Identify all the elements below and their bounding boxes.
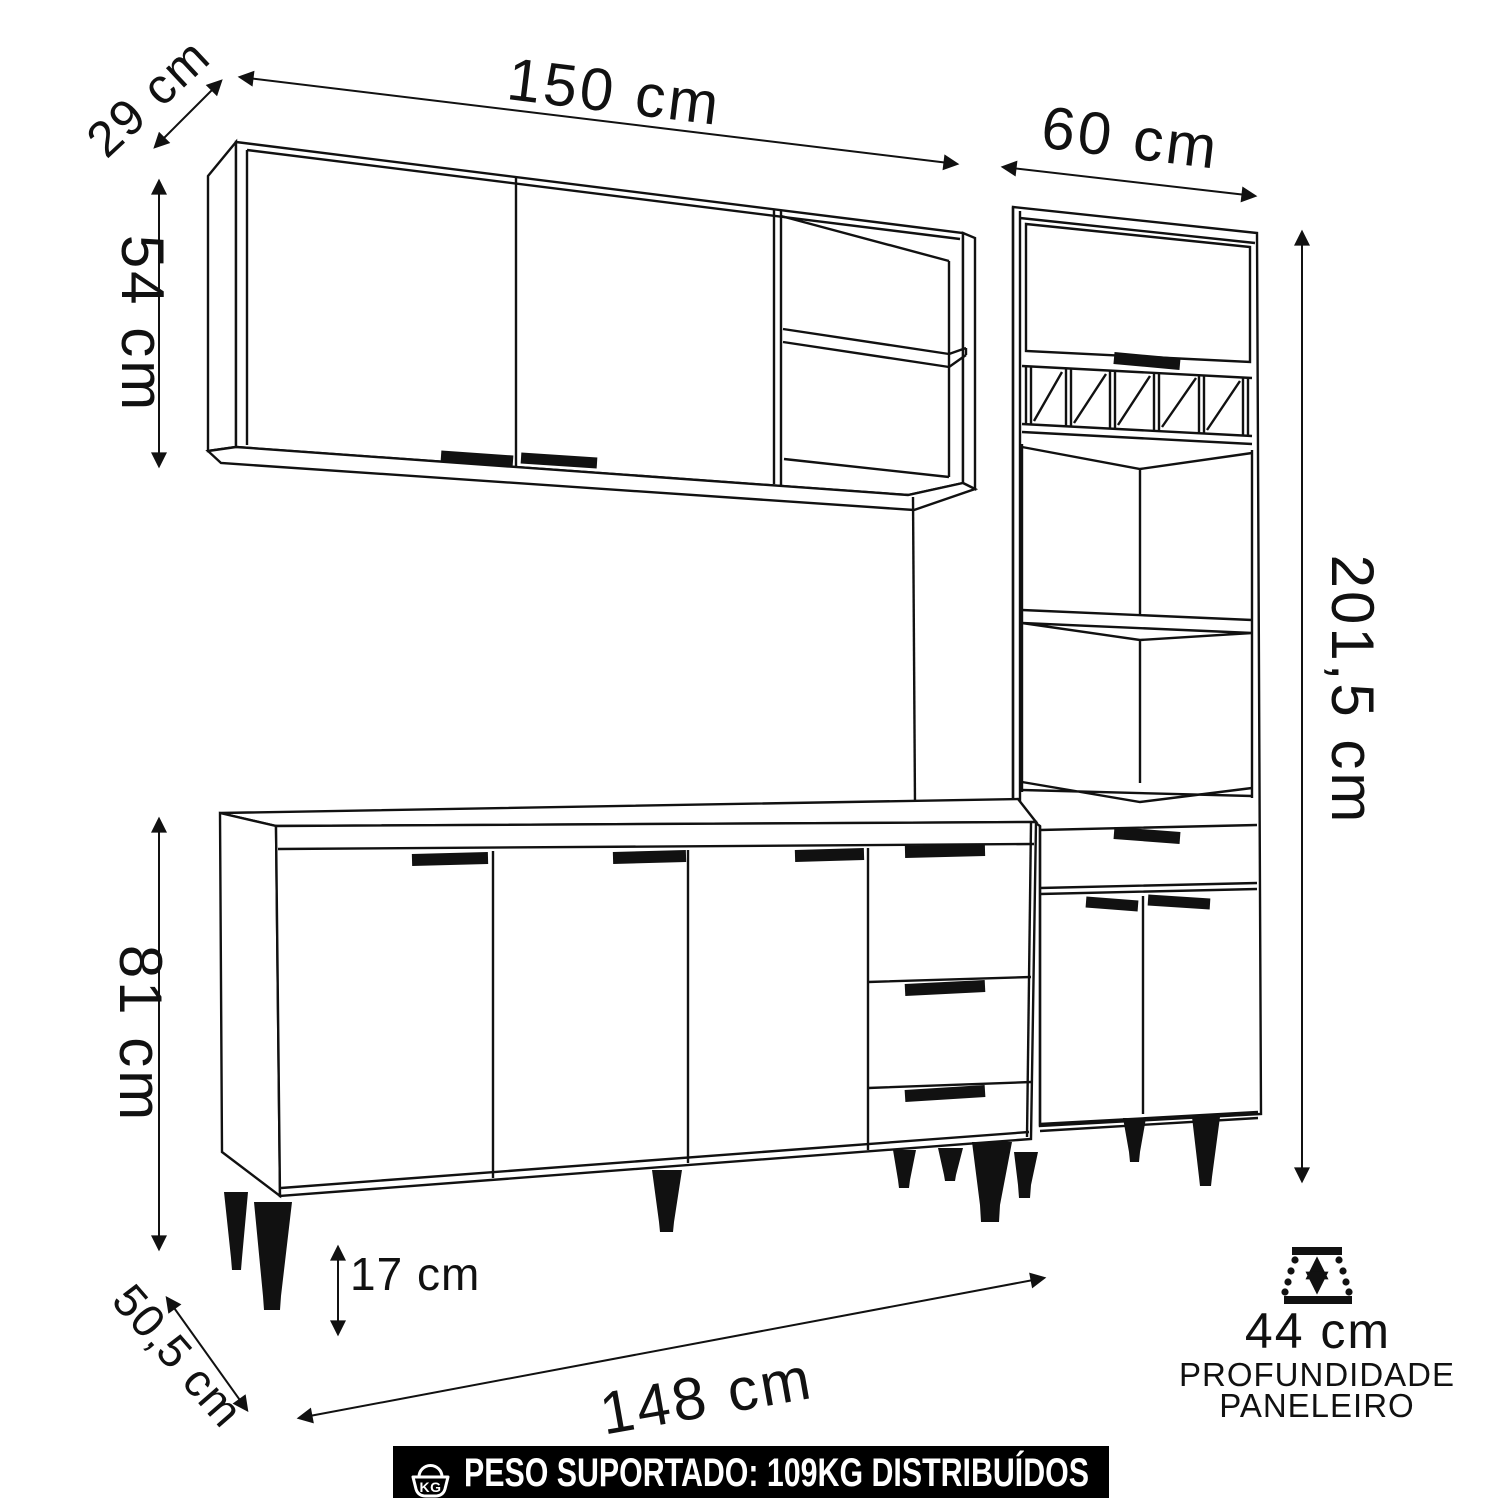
dimension-label-base-depth: 50,5 cm xyxy=(102,1274,253,1437)
dimension-label-total-height: 201,5 cm xyxy=(1319,555,1386,826)
base-door-3-handle xyxy=(795,854,864,856)
base-cabinet xyxy=(220,799,1036,1196)
dimension-label-upper-width: 150 cm xyxy=(504,45,725,138)
depth-arrow-icon xyxy=(1281,1251,1352,1300)
dimension-label-base-height: 81 cm xyxy=(107,945,174,1123)
leg xyxy=(938,1148,963,1181)
leg xyxy=(1123,1118,1146,1162)
dimension-label-pantry-width: 60 cm xyxy=(1038,94,1223,182)
dimension-label-feet-height: 17 cm xyxy=(350,1248,480,1300)
banner-text: PESO SUPORTADO: 109KG DISTRIBUÍDOS xyxy=(464,1450,1089,1495)
pantry-drawer-handle xyxy=(1114,833,1180,838)
dimension-label-upper-depth: 29 cm xyxy=(76,27,221,168)
supported-weight-banner: KG PESO SUPORTADO: 109KG DISTRIBUÍDOS xyxy=(393,1446,1109,1498)
dimension-label-upper-height: 54 cm xyxy=(109,235,176,413)
upper-door-left-handle xyxy=(441,456,513,461)
side-panel-edge xyxy=(913,497,915,806)
pantry-depth-badge: 44 cm PROFUNDIDADE PANELEIRO xyxy=(1179,1251,1455,1424)
leg xyxy=(224,1192,248,1270)
dimension-label-base-width: 148 cm xyxy=(595,1344,818,1447)
leg xyxy=(893,1150,916,1188)
leg xyxy=(972,1142,1012,1222)
dimension-arrow-pantry-width xyxy=(1003,167,1255,196)
base-drawer-1-handle xyxy=(905,850,985,852)
upper-door-right-handle xyxy=(521,458,597,463)
pantry-lower-door-left-handle xyxy=(1086,902,1138,906)
pantry-body xyxy=(1013,207,1261,1126)
furniture-dimension-diagram: 150 cm 29 cm 54 cm 60 cm 201,5 cm 81 cm … xyxy=(0,0,1500,1500)
leg xyxy=(652,1170,682,1232)
leg xyxy=(1014,1152,1038,1198)
upper-cabinet-right-edge xyxy=(963,233,975,489)
kg-icon-label: KG xyxy=(420,1479,442,1495)
upper-cabinet-left-panel xyxy=(208,142,236,451)
leg xyxy=(254,1202,292,1310)
base-door-2-handle xyxy=(613,856,686,858)
base-drawer-2-handle xyxy=(905,986,985,990)
tall-pantry-cabinet xyxy=(1013,207,1261,1131)
leg xyxy=(1192,1117,1220,1186)
upper-wall-cabinet xyxy=(208,142,975,510)
base-door-1-handle xyxy=(412,858,488,860)
pantry-top-door-handle xyxy=(1114,358,1180,364)
base-drawer-3-handle xyxy=(905,1091,985,1096)
pantry-depth-caption-line2: PANELEIRO xyxy=(1219,1387,1414,1424)
pantry-depth-value: 44 cm xyxy=(1245,1303,1391,1359)
pantry-lower-door-right-handle xyxy=(1148,900,1210,904)
base-cabinet-left-panel xyxy=(220,813,280,1196)
